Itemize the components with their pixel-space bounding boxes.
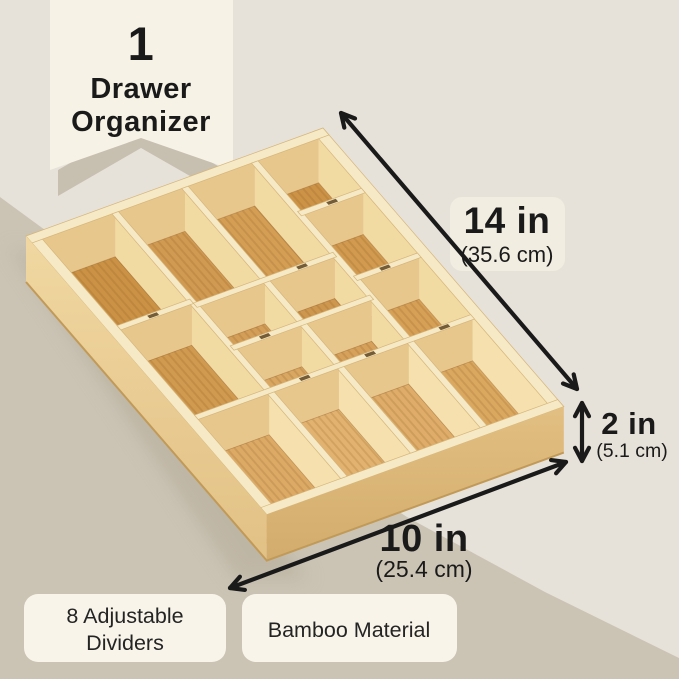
width-dimension-metric: (25.4 cm) <box>375 556 472 582</box>
dividers-badge-line2: Dividers <box>86 631 164 655</box>
banner-title-line1: Drawer <box>90 73 191 105</box>
height-dimension-metric: (5.1 cm) <box>596 440 668 462</box>
height-dimension-label: 2 in <box>601 406 656 441</box>
material-badge-label: Bamboo Material <box>268 618 431 642</box>
length-dimension-label: 14 in <box>464 200 551 241</box>
banner-count: 1 <box>128 17 155 70</box>
length-dimension-metric: (35.6 cm) <box>461 242 554 267</box>
dividers-badge-line1: 8 Adjustable <box>66 604 183 628</box>
width-dimension-label: 10 in <box>379 518 468 560</box>
banner-title-line2: Organizer <box>71 106 211 138</box>
product-infographic: 1 Drawer Organizer 14 in (35.6 cm) 2 in … <box>0 0 679 679</box>
scene: 1 Drawer Organizer 14 in (35.6 cm) 2 in … <box>0 0 679 679</box>
